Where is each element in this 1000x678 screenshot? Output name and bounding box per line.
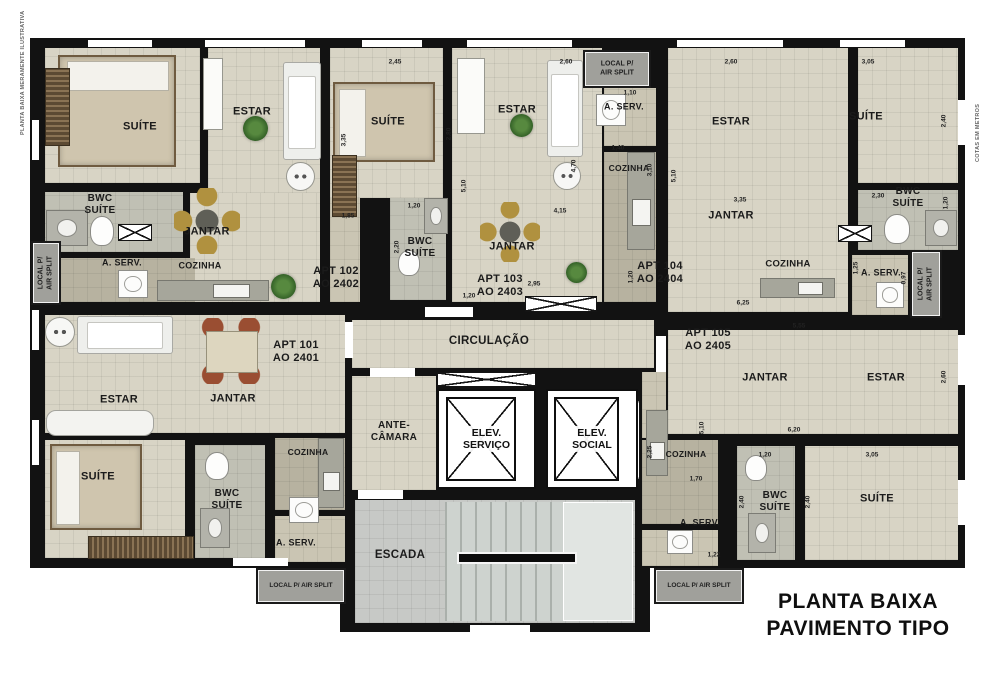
dimension-label: 2,45: [389, 59, 402, 66]
air-split-label: LOCAL P/ AIR SPLIT: [917, 267, 935, 301]
room-label: A. SERV.: [102, 258, 142, 269]
room-label: A. SERV.: [276, 538, 316, 549]
dimension-label: 5,10: [699, 422, 706, 435]
room-label: JANTAR: [489, 241, 535, 254]
wall-opening: [677, 40, 783, 47]
room-label: ESCADA: [375, 549, 425, 563]
stair-handrail-furniture: [457, 552, 577, 564]
toilet-furniture: [884, 214, 910, 244]
plant-furniture: [510, 114, 533, 137]
elevator-social-box: ELEV. SOCIAL: [546, 389, 638, 489]
room-label: ESTAR: [712, 116, 750, 129]
floor-area: [668, 48, 848, 312]
dimension-label: 1,40: [612, 145, 625, 152]
room-label: ESTAR: [233, 106, 271, 119]
room-label: COZINHA: [765, 258, 810, 269]
dimension-label: 1,10: [624, 90, 637, 97]
room-label: COZINHA: [666, 449, 707, 459]
room-label: JANTAR: [210, 393, 256, 406]
dimension-label: 2,80: [446, 128, 453, 141]
dimension-label: 2,20: [394, 241, 401, 254]
room-label: SUÍTE: [371, 116, 405, 129]
dimension-label: 2,40: [805, 496, 812, 509]
apartment-label: APT 101 AO 2401: [273, 339, 319, 365]
wall-opening: [32, 420, 39, 465]
air-split-zone: LOCAL P/ AIR SPLIT: [585, 52, 649, 86]
hatch-symbol: [838, 225, 872, 242]
kitchen-counter-furniture: [760, 278, 835, 298]
kitchen-counter-furniture: [646, 410, 668, 476]
hatch-symbol: [525, 296, 597, 312]
sink-furniture: [925, 210, 957, 246]
dining-set-furniture: [174, 188, 240, 254]
elevator-label: ELEV. SERVIÇO: [461, 426, 512, 452]
dimension-label: 2,60: [560, 59, 573, 66]
air-split-zone: LOCAL P/ AIR SPLIT: [912, 252, 940, 316]
dimension-label: 2,30: [872, 193, 885, 200]
dimension-label: 3,10: [647, 164, 654, 177]
dimension-label: 4,70: [571, 160, 578, 173]
right-margin-note: COTAS EM METROS: [975, 104, 981, 162]
apartment-label: APT 105 AO 2405: [685, 327, 731, 353]
dimension-label: 1,20: [408, 203, 421, 210]
room-label: BWC SUÍTE: [85, 193, 116, 217]
dimension-label: 2,60: [941, 371, 948, 384]
elevator-label: ELEV. SOCIAL: [570, 426, 614, 452]
wall-opening: [470, 625, 530, 632]
sink-furniture: [748, 513, 776, 553]
wall-opening: [88, 40, 152, 47]
dimension-label: 1,20: [628, 271, 635, 284]
wardrobe-furniture: [45, 68, 70, 146]
bathtub-furniture: [46, 410, 154, 436]
dimension-label: 1,85: [342, 213, 355, 220]
toilet-furniture: [745, 455, 767, 481]
air-split-label: LOCAL P/ AIR SPLIT: [600, 60, 634, 78]
sofa-furniture: [77, 316, 173, 354]
apartment-label: APT 104 AO 2404: [637, 260, 683, 286]
room-label: ESTAR: [100, 394, 138, 407]
room-label: JANTAR: [184, 226, 230, 239]
room-label: COZINHA: [178, 261, 221, 272]
dimension-label: 1,22: [708, 552, 721, 559]
sofa-furniture: [283, 62, 321, 160]
dimension-label: 4,15: [554, 208, 567, 215]
wall-opening: [233, 558, 288, 566]
room-label: SUÍTE: [849, 111, 883, 124]
dimension-label: 0,97: [901, 272, 908, 285]
room-label: COZINHA: [609, 163, 650, 173]
toilet-furniture: [90, 216, 114, 246]
bed-furniture: [58, 55, 176, 167]
wall-opening: [205, 40, 305, 47]
dimension-label: 6,20: [788, 427, 801, 434]
dimension-label: 6,25: [737, 300, 750, 307]
dimension-label: 1,25: [853, 262, 860, 275]
apartment-label: APT 102 AO 2402: [313, 265, 359, 291]
dimension-label: 5,10: [671, 170, 678, 183]
room-label: CIRCULAÇÃO: [449, 335, 529, 349]
room-label: A. SERV.: [680, 518, 720, 529]
dimension-label: 2,95: [528, 281, 541, 288]
wall-opening: [32, 310, 39, 350]
sink-furniture: [200, 508, 230, 548]
toilet-furniture: [205, 452, 229, 480]
plan-title-line2: PAVIMENTO TIPO: [766, 615, 949, 642]
kitchen-counter-furniture: [157, 280, 269, 301]
dimension-label: 3,05: [862, 59, 875, 66]
room-label: JANTAR: [708, 210, 754, 223]
room-label: BWC SUÍTE: [405, 236, 436, 260]
wall-opening: [958, 480, 965, 525]
room-label: A. SERV.: [861, 268, 901, 279]
wall-opening: [345, 322, 353, 358]
dimension-label: 5,55: [793, 323, 806, 330]
dimension-label: 3,35: [341, 134, 348, 147]
sink-furniture: [46, 210, 88, 246]
dimension-label: 3,05: [866, 452, 879, 459]
room-label: BWC SUÍTE: [212, 488, 243, 512]
wardrobe-furniture: [88, 536, 194, 559]
cabinet-furniture: [457, 58, 485, 134]
dimension-label: 3,35: [734, 197, 747, 204]
room-label: ANTE- CÂMARA: [371, 420, 417, 444]
left-margin-note: PLANTA BAIXA MERAMENTE ILUSTRATIVA: [20, 11, 26, 135]
dimension-label: 2,40: [941, 115, 948, 128]
plan-title: PLANTA BAIXA PAVIMENTO TIPO: [766, 588, 949, 643]
hatch-symbol: [118, 224, 152, 241]
elevator-service-box: ELEV. SERVIÇO: [437, 389, 536, 489]
side-table-furniture: [45, 317, 75, 347]
sink-furniture: [424, 198, 448, 234]
washing-machine-furniture: [118, 270, 148, 298]
plant-furniture: [271, 274, 296, 299]
side-table-furniture: [286, 162, 315, 191]
washing-machine-furniture: [289, 497, 319, 523]
room-label: COZINHA: [288, 447, 329, 457]
dimension-label: 1,20: [943, 197, 950, 210]
room-label: A. SERV.: [604, 102, 644, 113]
wall-opening: [467, 40, 572, 47]
plant-furniture: [243, 116, 268, 141]
room-label: SUÍTE: [123, 121, 157, 134]
room-label: JANTAR: [742, 372, 788, 385]
dimension-label: 5,10: [461, 180, 468, 193]
wall-opening: [32, 120, 39, 160]
dimension-label: 1,20: [759, 452, 772, 459]
wall-opening: [656, 336, 666, 372]
dimension-label: 2,25: [647, 446, 654, 459]
wall-opening: [958, 100, 965, 145]
wall-opening: [370, 368, 415, 377]
wall-opening: [958, 335, 965, 385]
air-split-zone: LOCAL P/ AIR SPLIT: [258, 570, 344, 602]
washing-machine-furniture: [667, 530, 693, 554]
plant-furniture: [566, 262, 587, 283]
cabinet-furniture: [203, 58, 223, 130]
room-label: ESTAR: [498, 104, 536, 117]
dimension-label: 2,40: [739, 496, 746, 509]
wall-opening: [425, 307, 473, 317]
wall-opening: [840, 40, 905, 47]
bed-furniture: [50, 444, 142, 530]
sofa-furniture: [547, 60, 583, 157]
air-split-label: LOCAL P/ AIR SPLIT: [667, 582, 730, 590]
washing-machine-furniture: [876, 282, 904, 308]
dining-set-furniture: [193, 318, 269, 384]
air-split-label: LOCAL P/ AIR SPLIT: [269, 582, 332, 590]
wall-opening: [362, 40, 422, 47]
hatch-symbol: [437, 372, 536, 387]
room-label: SUÍTE: [81, 471, 115, 484]
air-split-zone: LOCAL P/ AIR SPLIT: [33, 243, 59, 303]
wall-opening: [358, 490, 403, 499]
plan-title-line1: PLANTA BAIXA: [766, 588, 949, 615]
floor-plan-canvas: PLANTA BAIXA PAVIMENTO TIPO PLANTA BAIXA…: [0, 0, 1000, 678]
dimension-label: 2,60: [725, 59, 738, 66]
air-split-zone: LOCAL P/ AIR SPLIT: [656, 570, 742, 602]
dimension-label: 1,20: [463, 293, 476, 300]
wardrobe-furniture: [332, 155, 357, 217]
air-split-label: LOCAL P/ AIR SPLIT: [37, 256, 55, 290]
room-label: BWC SUÍTE: [893, 186, 924, 210]
room-label: SUÍTE: [860, 493, 894, 506]
room-label: ESTAR: [867, 372, 905, 385]
apartment-label: APT 103 AO 2403: [477, 273, 523, 299]
dimension-label: 1,70: [690, 476, 703, 483]
room-label: BWC SUÍTE: [760, 490, 791, 514]
